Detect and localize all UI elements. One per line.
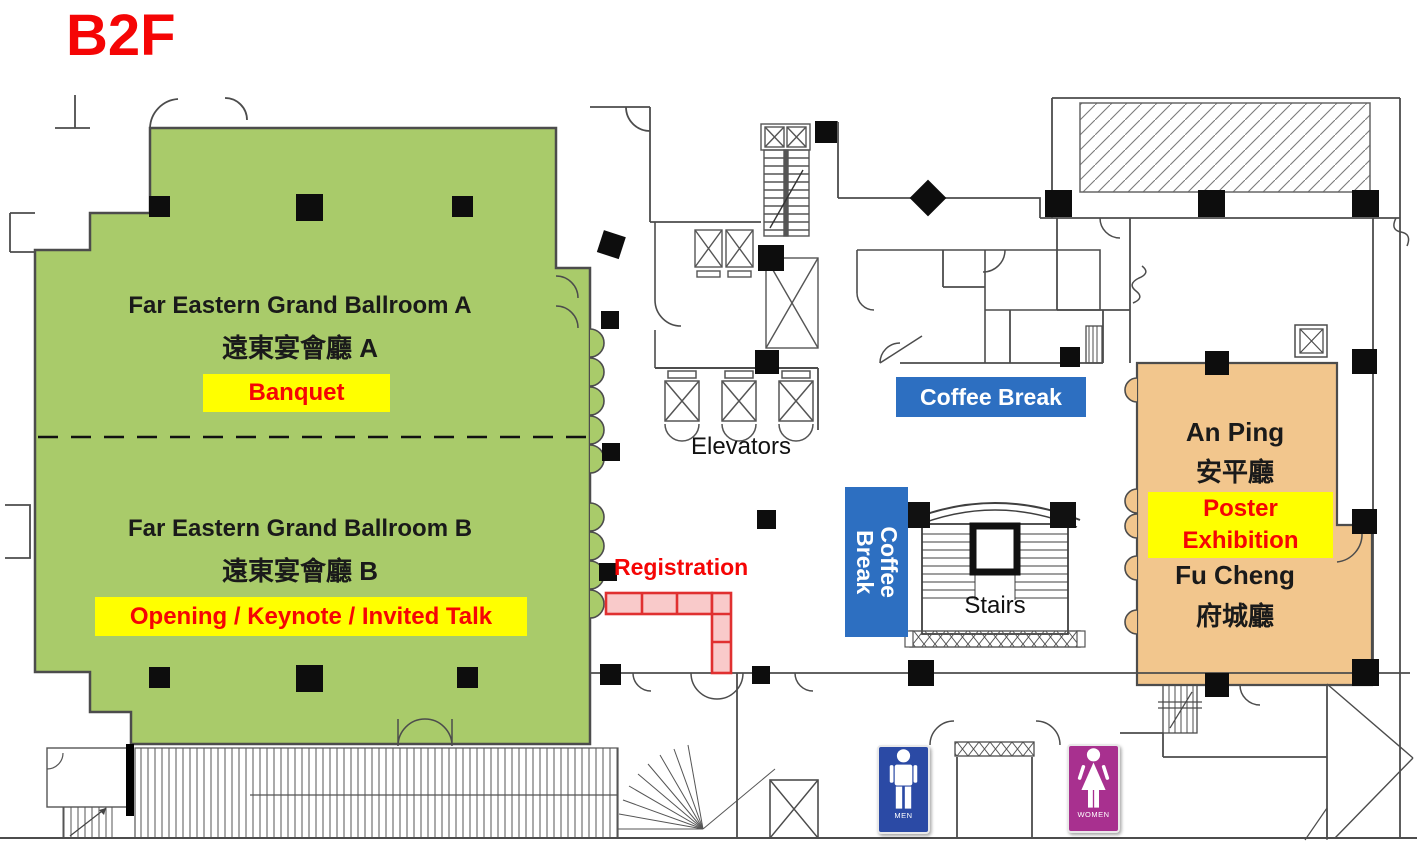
- womens-restroom-label: WOMEN: [1077, 810, 1109, 819]
- banquet-highlight: Banquet: [203, 374, 390, 412]
- stairs-label: Stairs: [964, 592, 1025, 620]
- poster-exhibition-line2: Exhibition: [1183, 525, 1299, 557]
- opening-keynote-highlight: Opening / Keynote / Invited Talk: [95, 597, 527, 636]
- coffee-break-label: Coffee Break: [920, 384, 1062, 411]
- ballroom-b-title-zh: 遠東宴會廳 B: [222, 551, 378, 588]
- mens-restroom-sign: MEN: [877, 745, 930, 834]
- diamond-column: [910, 180, 947, 217]
- stairs-main: [904, 502, 1085, 647]
- poster-exhibition-line1: Poster: [1203, 493, 1278, 525]
- coffee-break-box: Coffee Break: [896, 377, 1086, 417]
- fu-cheng-title-zh: 府城廳: [1196, 596, 1274, 633]
- coffee-break-box-vertical: Coffee Break: [845, 487, 908, 637]
- man-icon: [881, 747, 926, 813]
- womens-restroom-sign: WOMEN: [1067, 744, 1120, 833]
- elevators-label: Elevators: [691, 433, 791, 461]
- elevator-bank: [655, 368, 818, 441]
- stairwell-top: [761, 124, 810, 236]
- coffee-break-vertical-label: Coffee Break: [852, 526, 900, 598]
- ballroom-a-title-zh: 遠東宴會廳 A: [222, 328, 378, 365]
- registration-table: [606, 593, 731, 673]
- elevator-icon: [722, 371, 756, 441]
- hatched-shaft-top-right: [1080, 103, 1370, 192]
- an-ping-title-zh: 安平廳: [1196, 452, 1274, 489]
- mens-restroom-label: MEN: [894, 811, 912, 820]
- service-lifts: [695, 230, 818, 348]
- banquet-label: Banquet: [249, 379, 345, 407]
- poster-exhibition-highlight: Poster Exhibition: [1148, 492, 1333, 558]
- woman-icon: [1071, 746, 1116, 812]
- ballroom-b-title: Far Eastern Grand Ballroom B: [128, 515, 472, 543]
- opening-keynote-label: Opening / Keynote / Invited Talk: [130, 603, 492, 631]
- elevator-icon: [665, 371, 699, 441]
- an-ping-title: An Ping: [1186, 417, 1284, 448]
- ballroom-a-title: Far Eastern Grand Ballroom A: [128, 292, 471, 320]
- floor-plan: B2F Far Eastern Grand Ballroom A 遠東宴會廳 A…: [0, 0, 1417, 842]
- elevator-icon: [779, 371, 813, 441]
- escalator-ramp: [47, 744, 775, 838]
- floor-label: B2F: [66, 2, 176, 69]
- fu-cheng-title: Fu Cheng: [1175, 560, 1295, 591]
- registration-label: Registration: [614, 554, 748, 581]
